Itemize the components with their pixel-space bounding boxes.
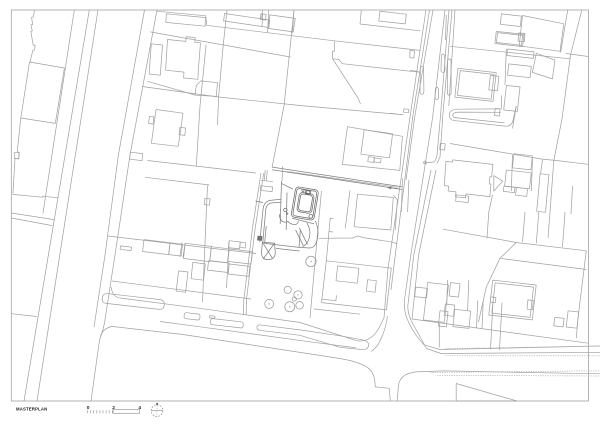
svg-text:0: 0 [87,405,90,411]
svg-text:MASTERPLAN: MASTERPLAN [16,407,47,412]
